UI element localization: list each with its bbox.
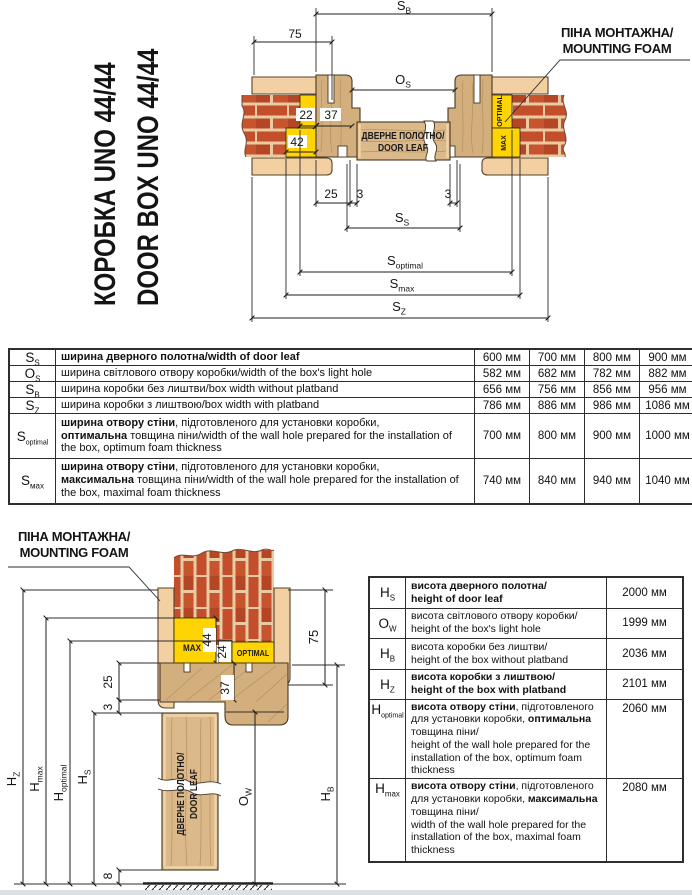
door-leaf-label-uk: ДВЕРНЕ ПОЛОТНО/ (175, 752, 186, 835)
dim-value: 900 мм (640, 349, 692, 366)
dim-symbol: HS (369, 577, 406, 608)
foam-max-label: MAX (183, 643, 201, 654)
dim-description: ширина коробки з лиштвою/box width with … (56, 398, 475, 414)
dim-value: 800 мм (585, 349, 640, 366)
dim-value: 840 мм (530, 459, 585, 504)
dim-value: 682 мм (530, 366, 585, 382)
svg-text:3: 3 (445, 187, 452, 201)
dim-24: 24 (215, 645, 229, 659)
svg-text:Hoptimal: Hoptimal (51, 764, 69, 801)
dim-value: 2060 мм (607, 699, 684, 779)
dim-75-vertical: 75 (306, 590, 325, 685)
dim-value: 782 мм (585, 366, 640, 382)
dim-37: 37 (218, 681, 232, 695)
dim-value: 956 мм (640, 382, 692, 398)
dim-value: 1086 мм (640, 398, 692, 414)
dim-sz: SZ (252, 177, 548, 322)
foam-leader-bottom (8, 567, 160, 601)
svg-text:22: 22 (299, 108, 313, 122)
page-title-vertical: КОРОБКА UNO 44/44 DOOR BOX UNO 44/44 (84, 14, 174, 306)
page-title-line1: КОРОБКА UNO 44/44 (84, 72, 127, 306)
dim-value: 582 мм (475, 366, 530, 382)
dim-symbol: Hoptimal (369, 699, 406, 779)
dim-symbol: SZ (9, 398, 56, 414)
page-bottom-strip (0, 890, 692, 895)
dim-value: 740 мм (475, 459, 530, 504)
foam-optimal-label: OPTIMAL (497, 95, 504, 127)
svg-text:8: 8 (101, 872, 115, 879)
dim-value: 600 мм (475, 349, 530, 366)
dim-smax: Smax (286, 159, 520, 299)
door-jamb-right (446, 75, 492, 157)
foam-label-line2: MOUNTING FOAM (4, 545, 144, 561)
svg-text:37: 37 (324, 108, 338, 122)
dim-value: 856 мм (585, 382, 640, 398)
svg-text:Soptimal: Soptimal (387, 253, 423, 271)
bottom-section-drawing: MAX OPTIMAL 44 24 37 ДВЕРНЕ ПОЛОТНО/ (0, 520, 370, 895)
foam-max-label: MAX (501, 135, 508, 151)
dim-ow: OW (236, 712, 255, 884)
door-leaf-vertical: ДВЕРНЕ ПОЛОТНО/ DOOR LEAF (158, 713, 221, 870)
page: OPTIMAL MAX ДВЕ (0, 0, 692, 895)
svg-text:SZ: SZ (392, 299, 406, 317)
dim-value: 756 мм (530, 382, 585, 398)
svg-text:42: 42 (290, 135, 304, 149)
svg-text:25: 25 (101, 675, 115, 689)
dim-description: висота коробки без лиштви/ height of the… (406, 638, 607, 669)
table-row: OW висота світлового отвору коробки/ hei… (369, 608, 683, 638)
foam-label-line1: ПІНА МОНТАЖНА/ (543, 25, 691, 41)
table-row: Sмах ширина отвору стіни, підготовленого… (9, 459, 692, 504)
dim-symbol: OS (9, 366, 56, 382)
mounting-foam-label-bottom: ПІНА МОНТАЖНА/ MOUNTING FOAM (4, 529, 144, 561)
width-table: SS ширина дверного полотна/width of door… (8, 348, 692, 505)
dim-ss: SS (347, 164, 460, 232)
svg-text:Hmax: Hmax (27, 766, 45, 792)
table-row: HB висота коробки без лиштви/ height of … (369, 638, 683, 669)
dim-os: OS (352, 72, 455, 90)
dim-value: 1040 мм (640, 459, 692, 504)
dim-hz: HZ (4, 590, 23, 884)
foam-optimal-label: OPTIMAL (237, 648, 270, 658)
table-row: Soptimal ширина отвору стіни, підготовле… (9, 414, 692, 459)
dim-hs: HS (75, 713, 94, 884)
dim-symbol: OW (369, 608, 406, 638)
dim-description: ширина світлового отвору коробки/width o… (56, 366, 475, 382)
dim-25-3-3: 25 3 3 (316, 160, 457, 207)
table-row: Hoptimal висота отвору стіни, підготовле… (369, 699, 683, 779)
door-leaf-label-en: DOOR LEAF (188, 769, 199, 819)
svg-text:OS: OS (395, 72, 411, 90)
svg-text:HS: HS (75, 769, 93, 784)
svg-text:SB: SB (397, 0, 412, 16)
height-table: HS висота дверного полотна/ height of do… (368, 576, 684, 863)
dim-25-3-8: 25 3 8 (101, 663, 119, 884)
table-row: OS ширина світлового отвору коробки/widt… (9, 366, 692, 382)
dim-value: 656 мм (475, 382, 530, 398)
dim-value: 2036 мм (607, 638, 684, 669)
dim-symbol: HZ (369, 669, 406, 699)
door-leaf-plan: ДВЕРНЕ ПОЛОТНО/ DOOR LEAF (357, 121, 450, 161)
dim-sb: SB (316, 0, 492, 72)
svg-text:25: 25 (324, 187, 338, 201)
table-row: HZ висота коробки з лиштвою/ height of t… (369, 669, 683, 699)
dim-value: 882 мм (640, 366, 692, 382)
table-row: SS ширина дверного полотна/width of door… (9, 349, 692, 366)
dim-value: 800 мм (530, 414, 585, 459)
dim-value: 900 мм (585, 414, 640, 459)
dim-value: 786 мм (475, 398, 530, 414)
svg-text:Smax: Smax (390, 276, 415, 294)
svg-text:75: 75 (288, 27, 302, 41)
dim-symbol: HB (369, 638, 406, 669)
dim-value: 2000 мм (607, 577, 684, 608)
dim-symbol: Sмах (9, 459, 56, 504)
dim-value: 986 мм (585, 398, 640, 414)
dim-symbol: Soptimal (9, 414, 56, 459)
door-leaf-label-uk: ДВЕРНЕ ПОЛОТНО/ (362, 130, 445, 141)
dim-value: 1000 мм (640, 414, 692, 459)
dim-description: ширина коробки без лиштви/box width with… (56, 382, 475, 398)
svg-text:SS: SS (395, 210, 410, 228)
table-row: HS висота дверного полотна/ height of do… (369, 577, 683, 608)
svg-text:HB: HB (318, 786, 336, 801)
dim-44: 44 (200, 633, 214, 647)
svg-text:OW: OW (236, 788, 254, 806)
dim-hb: HB (318, 665, 337, 884)
svg-text:HZ: HZ (4, 772, 22, 787)
dim-symbol: SB (9, 382, 56, 398)
dim-symbol: Hmax (369, 779, 406, 862)
dim-value: 940 мм (585, 459, 640, 504)
dim-value: 886 мм (530, 398, 585, 414)
svg-text:75: 75 (306, 630, 321, 644)
dim-value: 2080 мм (607, 779, 684, 862)
foam-label-line2: MOUNTING FOAM (543, 41, 691, 57)
dim-description: висота отвору стіни, підготовленого для … (406, 779, 607, 862)
dim-description: висота отвору стіни, підготовленого для … (406, 699, 607, 779)
table-row: SB ширина коробки без лиштви/box width w… (9, 382, 692, 398)
dim-symbol: SS (9, 349, 56, 366)
table-row: SZ ширина коробки з лиштвою/box width wi… (9, 398, 692, 414)
table-row: Hmax висота отвору стіни, підготовленого… (369, 779, 683, 862)
page-title-line2: DOOR BOX UNO 44/44 (127, 72, 170, 306)
dim-description: ширина отвору стіни, підготовленого для … (56, 459, 475, 504)
foam-label-line1: ПІНА МОНТАЖНА/ (4, 529, 144, 545)
door-leaf-label-en: DOOR LEAF (378, 142, 428, 153)
dim-description: висота дверного полотна/ height of door … (406, 577, 607, 608)
dim-description: висота коробки з лиштвою/ height of the … (406, 669, 607, 699)
dim-value: 700 мм (475, 414, 530, 459)
dim-value: 1999 мм (607, 608, 684, 638)
dim-value: 700 мм (530, 349, 585, 366)
dim-hoptimal: Hoptimal (51, 641, 70, 884)
mounting-foam-label-top: ПІНА МОНТАЖНА/ MOUNTING FOAM (543, 25, 691, 57)
dim-hmax: Hmax (27, 618, 46, 884)
dim-value: 2101 мм (607, 669, 684, 699)
dim-description: висота світлового отвору коробки/ height… (406, 608, 607, 638)
svg-text:3: 3 (101, 703, 115, 710)
dim-description: ширина дверного полотна/width of door le… (56, 349, 475, 366)
dim-description: ширина отвору стіни, підготовленого для … (56, 414, 475, 459)
svg-text:3: 3 (357, 187, 364, 201)
